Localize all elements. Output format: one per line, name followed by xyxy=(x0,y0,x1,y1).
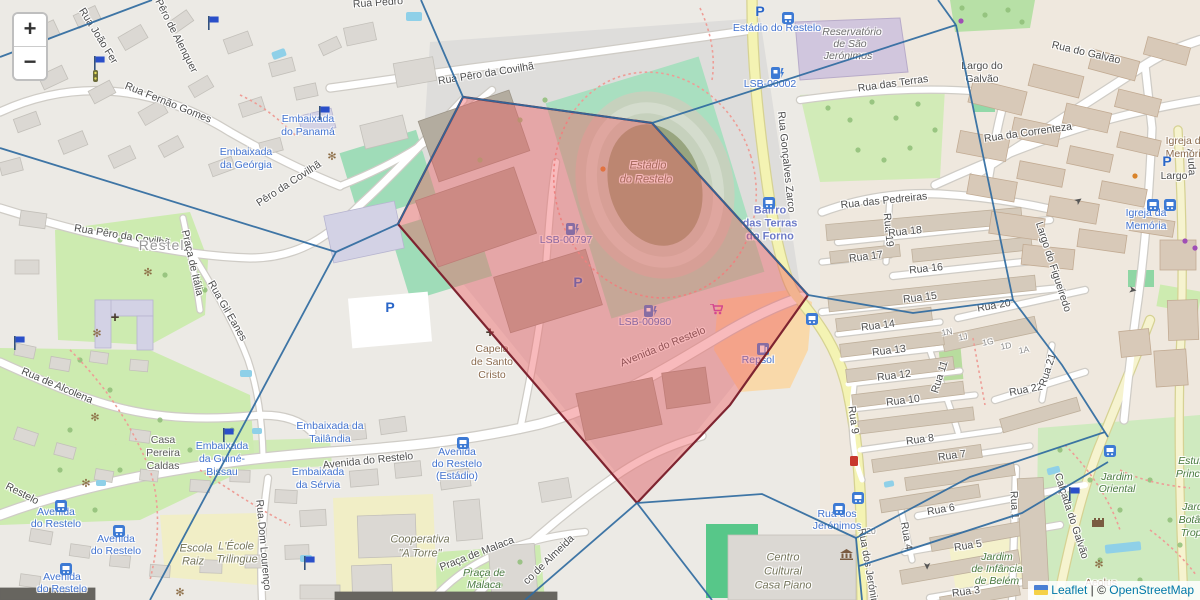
zoom-control: + − xyxy=(12,12,48,81)
voronoi-edge xyxy=(938,0,956,25)
attribution-bar: Leaflet | © OpenStreetMap xyxy=(1028,581,1200,600)
zoom-in-button[interactable]: + xyxy=(14,14,46,47)
voronoi-edge xyxy=(421,0,463,97)
voronoi-edge xyxy=(652,25,956,123)
voronoi-edge xyxy=(1013,300,1108,437)
voronoi-edge xyxy=(859,462,1108,566)
voronoi-edge xyxy=(637,494,856,538)
voronoi-edge xyxy=(956,25,1013,300)
voronoi-edge xyxy=(856,538,862,600)
map-overlay-layer xyxy=(0,0,1200,600)
attribution-separator: | xyxy=(1087,583,1097,597)
openstreetmap-link[interactable]: OpenStreetMap xyxy=(1109,583,1194,597)
highlighted-voronoi-cell[interactable] xyxy=(398,97,808,503)
ukraine-flag-icon xyxy=(1034,585,1048,595)
zoom-out-button[interactable]: − xyxy=(14,47,46,79)
voronoi-edge xyxy=(0,148,336,252)
leaflet-map[interactable]: Rua João FerPêro de AlenquerRua PedroRua… xyxy=(0,0,1200,600)
voronoi-edge xyxy=(637,503,712,600)
voronoi-edge xyxy=(525,503,637,600)
copyright-symbol: © xyxy=(1097,583,1109,597)
voronoi-edge xyxy=(336,224,398,252)
voronoi-edge xyxy=(150,252,336,600)
leaflet-link[interactable]: Leaflet xyxy=(1051,583,1087,597)
voronoi-edge xyxy=(808,295,1013,313)
